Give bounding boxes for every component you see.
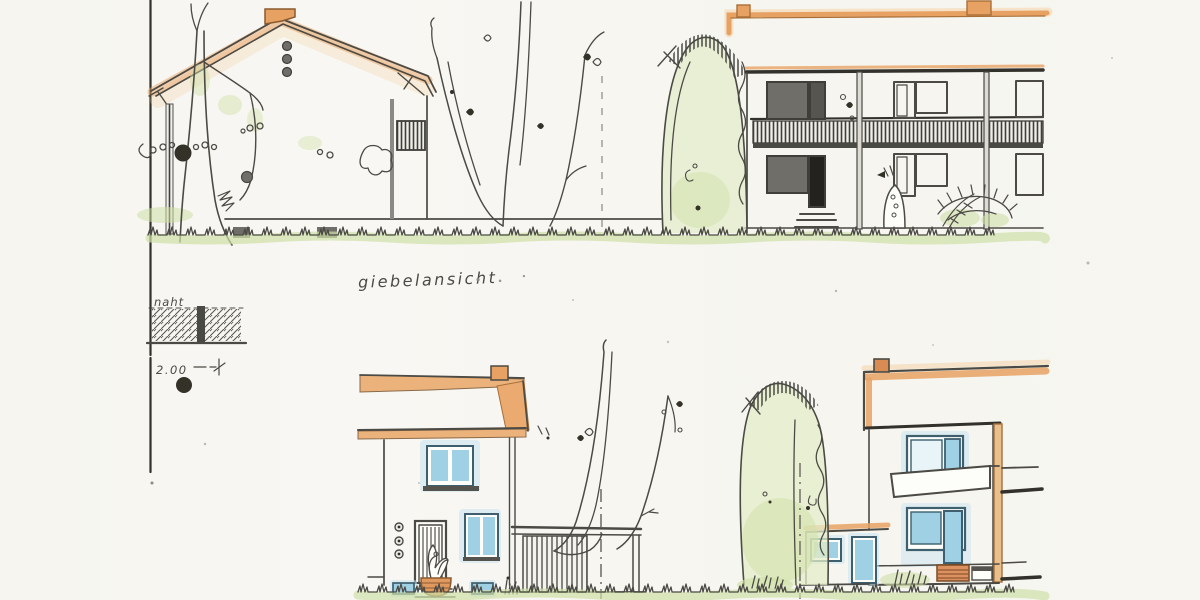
leaf-blob (360, 146, 392, 175)
lower-window-door (901, 503, 971, 567)
arched-tree-bottom (737, 383, 828, 599)
chimney (491, 366, 508, 380)
upper-floor-windows (767, 81, 1043, 119)
chimney (874, 359, 889, 372)
house-elevation-bottom-right (800, 359, 1048, 588)
dimension-tick (194, 359, 225, 375)
roofline (729, 1, 1048, 33)
orange-planter (937, 565, 969, 581)
balcony-band (751, 117, 1043, 148)
orange-post (994, 424, 1002, 582)
chimney-right (967, 1, 991, 15)
gable-view-label: giebelansicht (358, 267, 526, 292)
chimney-left (737, 5, 750, 17)
balcony-rails-right (1002, 467, 1042, 579)
walls-and-base (225, 96, 661, 219)
seam-bar (197, 306, 205, 342)
grass-bottom (358, 584, 1045, 597)
front-door (415, 521, 448, 583)
roof (358, 366, 529, 439)
shrub (841, 95, 1018, 229)
house-elevation-bottom-left (358, 366, 645, 597)
rowhouse-garden (841, 95, 1018, 229)
roof-slab (864, 359, 1048, 430)
scanned-architectural-sketch: giebelansicht naht 2.00 (0, 0, 1200, 600)
gable-vent-dots (283, 42, 292, 77)
elevation-drawing-svg: giebelansicht naht 2.00 (0, 0, 1200, 600)
mid-trees-top (431, 2, 604, 226)
white-box (972, 567, 992, 580)
grass-tufts-front (880, 570, 930, 588)
entry-steps (795, 214, 838, 227)
seam-detail: naht 2.00 (147, 295, 246, 393)
lower-floor-windows (767, 154, 1043, 207)
seam-detail-label-text: naht (154, 295, 184, 309)
facade-posts (857, 72, 989, 229)
doorbell-circles (395, 523, 403, 558)
garage (512, 527, 645, 592)
cone-figure (877, 166, 905, 228)
seam-dimension-text: 2.00 (156, 363, 188, 377)
dark-dot-lower (176, 377, 192, 393)
arched-tree-top (658, 37, 747, 233)
grass-top (148, 227, 1045, 240)
dark-dot-upper (175, 145, 192, 162)
upper-window (420, 440, 480, 492)
lower-window (459, 509, 501, 563)
mid-trees-bottom (538, 340, 683, 555)
seam-hatch (152, 309, 241, 341)
gable-house-elevation (149, 9, 661, 238)
shuttered-window (397, 121, 425, 150)
downpipe-lines (510, 438, 516, 585)
eave (746, 66, 1043, 72)
